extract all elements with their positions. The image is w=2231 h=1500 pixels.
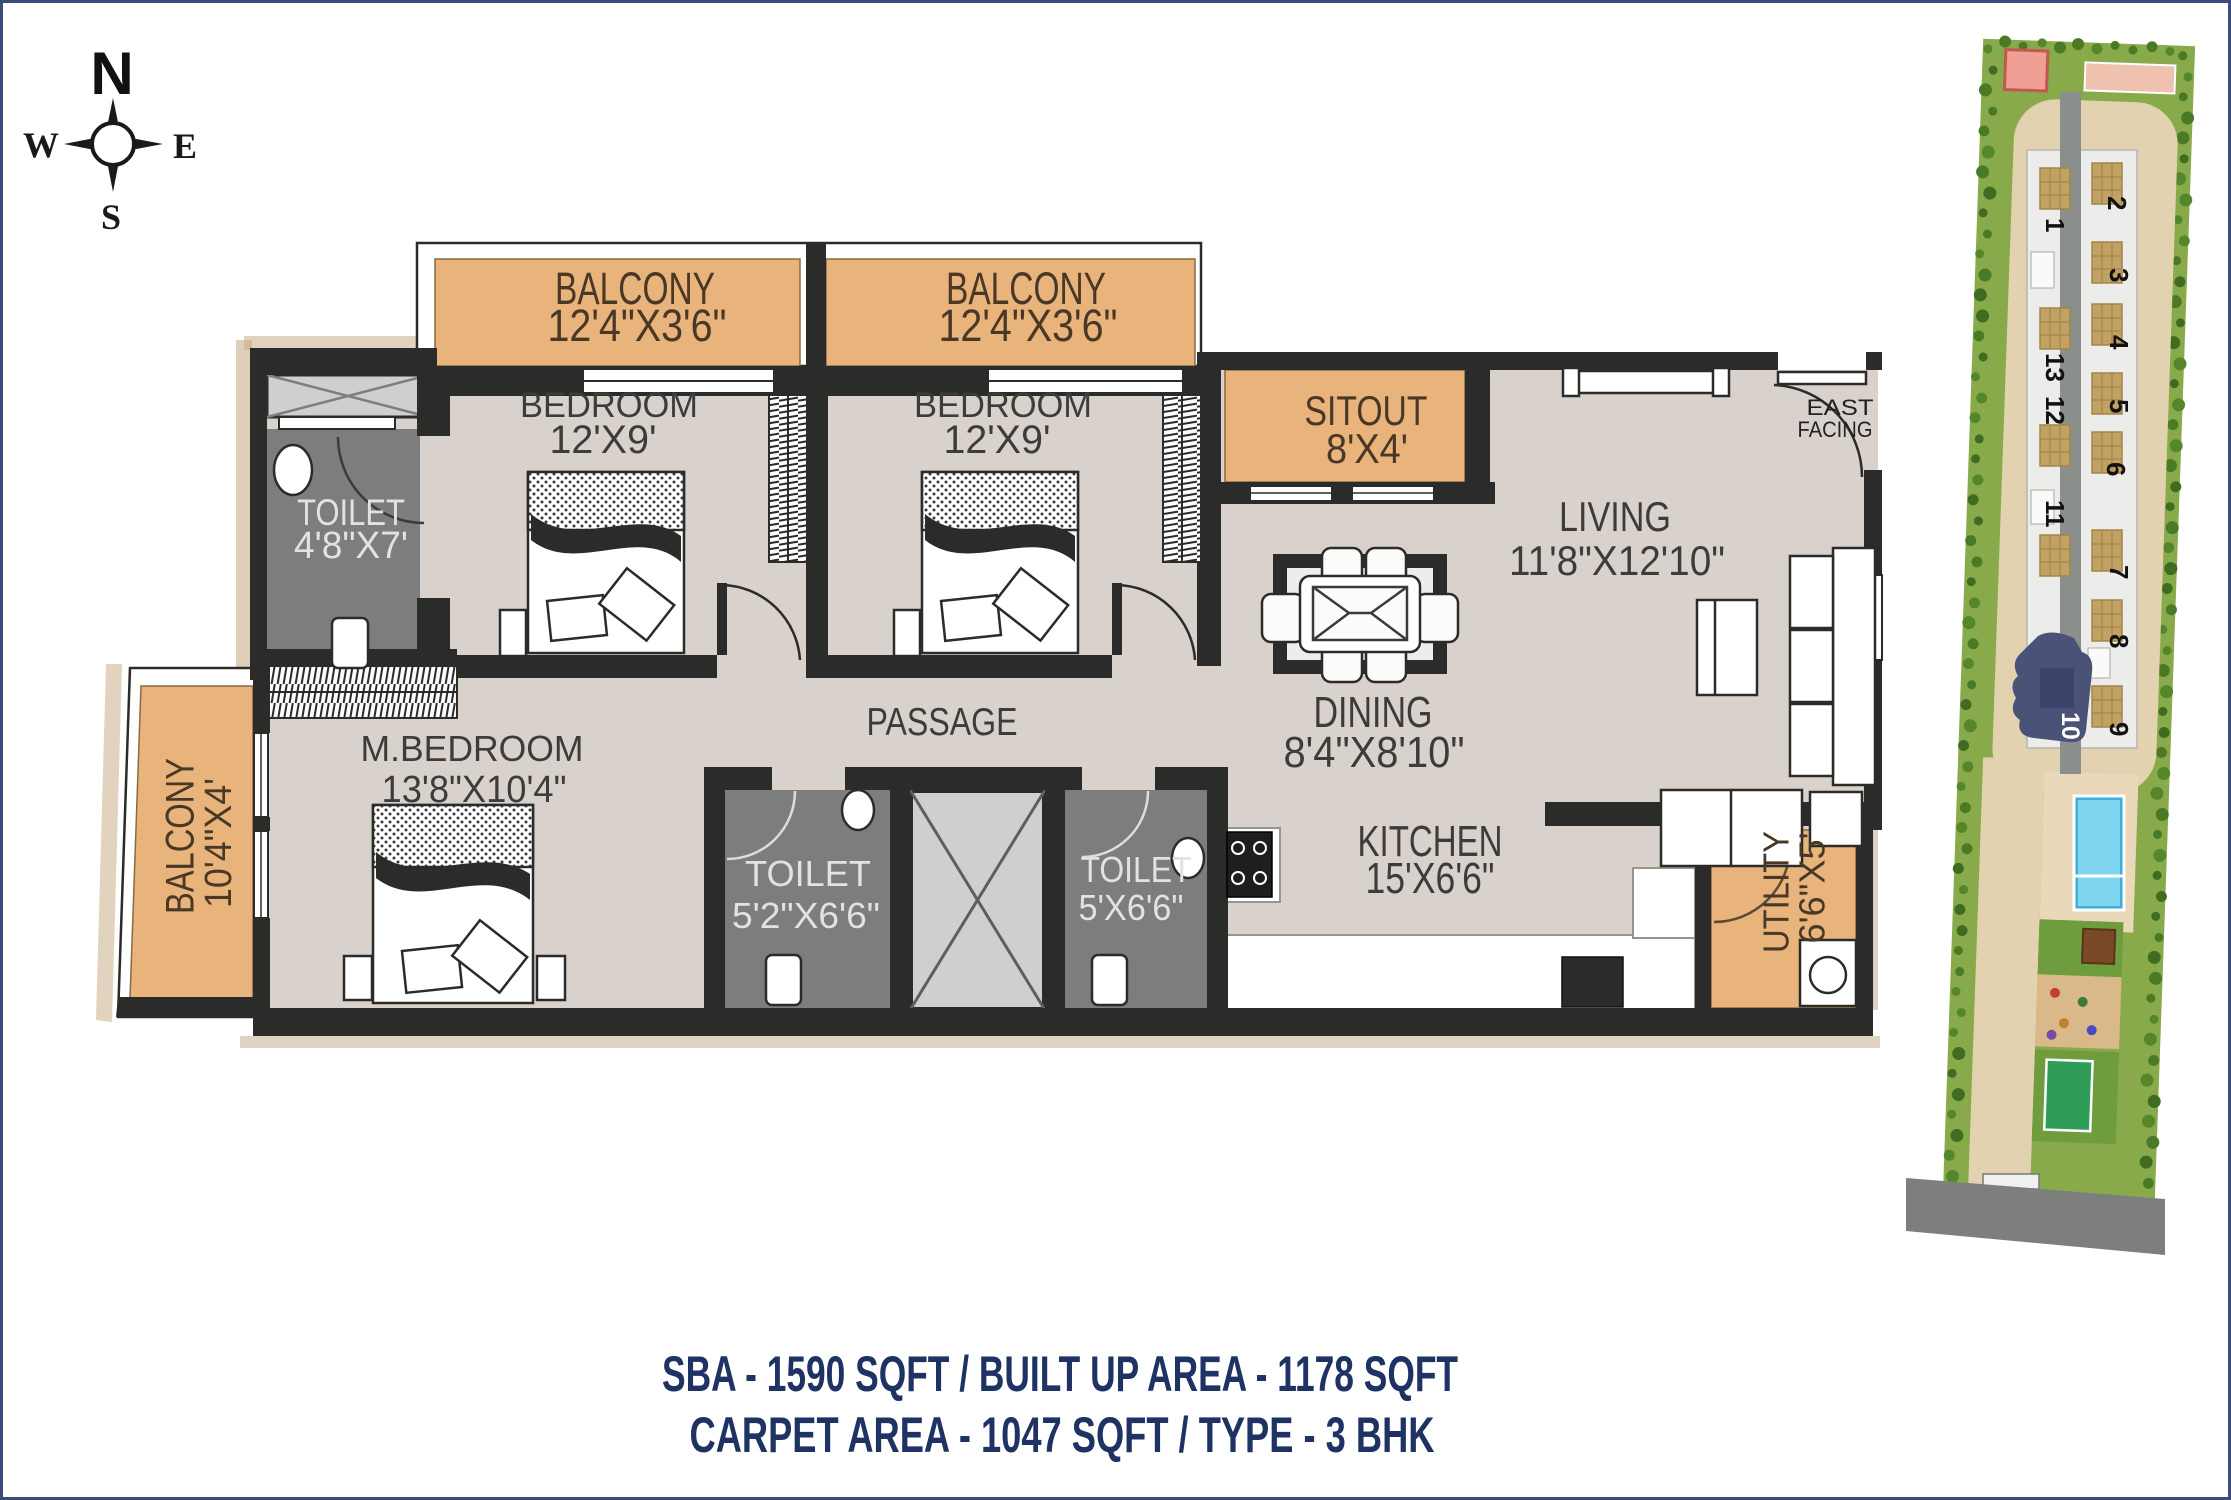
svg-text:CARPET AREA - 1047 SQFT / TYPE: CARPET AREA - 1047 SQFT / TYPE - 3 BHK xyxy=(690,1407,1435,1463)
svg-text:6: 6 xyxy=(2101,462,2131,476)
svg-text:M.BEDROOM: M.BEDROOM xyxy=(361,728,584,769)
svg-text:E: E xyxy=(173,126,197,166)
svg-text:10'4"X4': 10'4"X4' xyxy=(198,778,240,908)
svg-text:5'2"X6'6": 5'2"X6'6" xyxy=(732,895,880,936)
svg-text:7: 7 xyxy=(2104,565,2134,579)
svg-text:12'X9': 12'X9' xyxy=(550,418,657,462)
svg-text:TOILET: TOILET xyxy=(1081,849,1192,890)
svg-text:12'4"X3'6": 12'4"X3'6" xyxy=(548,300,727,351)
svg-text:N: N xyxy=(90,40,133,107)
svg-text:13'8"X10'4": 13'8"X10'4" xyxy=(382,769,567,811)
svg-text:4: 4 xyxy=(2104,335,2134,350)
svg-text:5'X6'6": 5'X6'6" xyxy=(1079,887,1184,928)
svg-text:15'X6'6": 15'X6'6" xyxy=(1366,854,1495,903)
svg-text:9: 9 xyxy=(2104,722,2134,736)
svg-text:LIVING: LIVING xyxy=(1559,493,1671,540)
svg-text:8'X4': 8'X4' xyxy=(1326,425,1408,472)
svg-text:W: W xyxy=(23,125,59,165)
svg-text:8: 8 xyxy=(2104,634,2134,648)
svg-text:S: S xyxy=(101,197,121,237)
svg-text:11: 11 xyxy=(2040,500,2070,528)
svg-text:8'4"X8'10": 8'4"X8'10" xyxy=(1284,728,1465,777)
svg-text:6'6"X5': 6'6"X5' xyxy=(1792,833,1833,944)
svg-text:SBA - 1590 SQFT / BUILT UP ARE: SBA - 1590 SQFT / BUILT UP AREA - 1178 S… xyxy=(662,1346,1458,1402)
svg-text:11'8"X12'10": 11'8"X12'10" xyxy=(1509,537,1725,584)
svg-text:13: 13 xyxy=(2040,353,2070,382)
svg-text:12'4"X3'6": 12'4"X3'6" xyxy=(939,300,1118,351)
svg-text:PASSAGE: PASSAGE xyxy=(867,701,1018,744)
svg-text:12: 12 xyxy=(2040,396,2070,425)
svg-text:FACING: FACING xyxy=(1798,417,1873,442)
svg-text:TOILET: TOILET xyxy=(745,853,871,894)
svg-text:1: 1 xyxy=(2040,218,2070,232)
svg-text:3: 3 xyxy=(2104,268,2134,282)
svg-text:UTILITY: UTILITY xyxy=(1756,831,1797,953)
svg-text:2: 2 xyxy=(2102,196,2132,210)
svg-text:4'8"X7': 4'8"X7' xyxy=(294,525,408,567)
svg-text:5: 5 xyxy=(2104,399,2134,413)
svg-text:BALCONY: BALCONY xyxy=(159,758,203,914)
svg-text:10: 10 xyxy=(2056,712,2084,740)
svg-text:12'X9': 12'X9' xyxy=(944,418,1051,462)
